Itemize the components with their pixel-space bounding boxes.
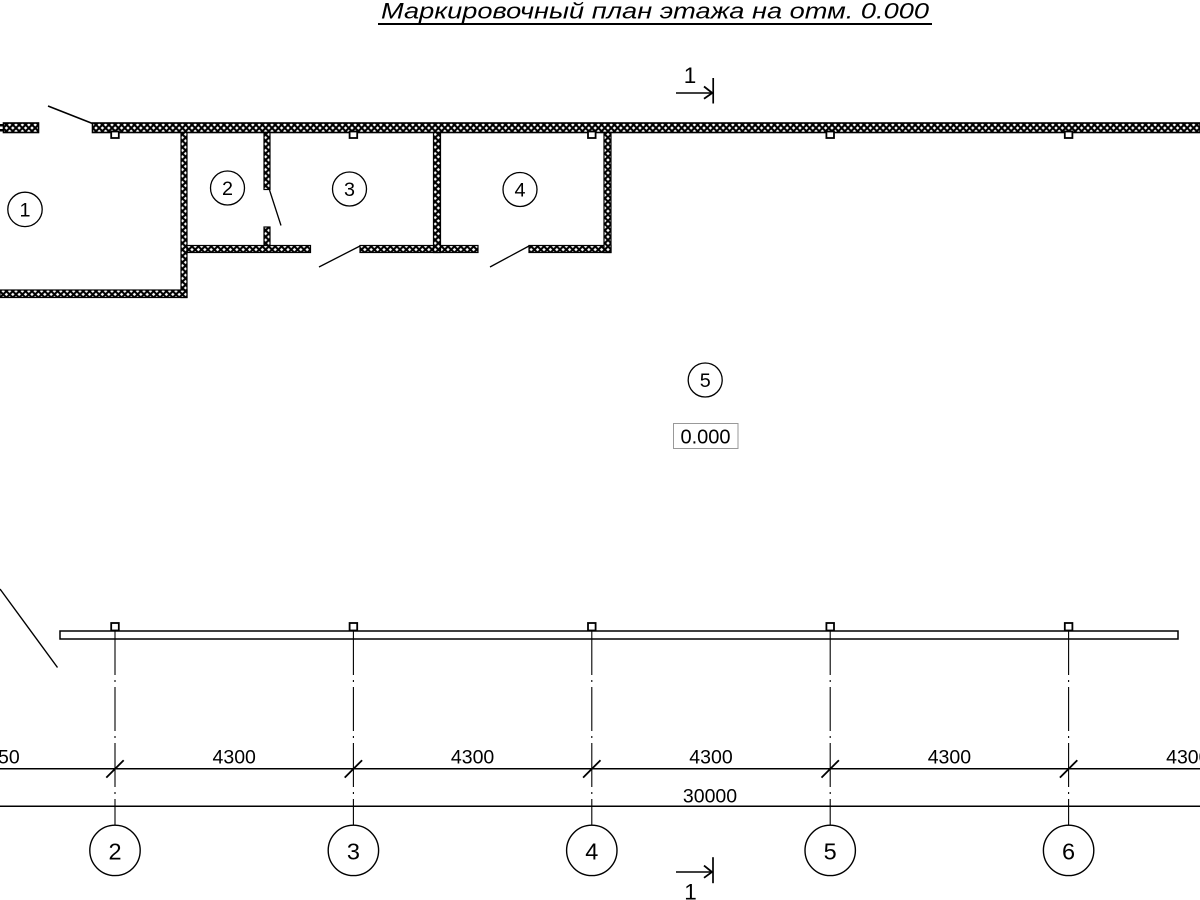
svg-text:1: 1	[684, 880, 697, 900]
svg-text:4300: 4300	[451, 747, 495, 769]
svg-text:1: 1	[19, 200, 30, 222]
svg-text:4: 4	[585, 839, 598, 865]
svg-text:2: 2	[108, 839, 121, 865]
svg-text:3: 3	[344, 179, 355, 201]
svg-text:30000: 30000	[683, 786, 737, 808]
svg-text:4300: 4300	[1166, 747, 1200, 769]
svg-text:3: 3	[347, 839, 360, 865]
svg-text:4300: 4300	[689, 747, 733, 769]
svg-text:4300: 4300	[213, 747, 257, 769]
svg-text:4: 4	[514, 180, 525, 202]
svg-text:Маркировочный план этажа на от: Маркировочный план этажа на отм. 0.000	[381, 0, 930, 24]
svg-text:6: 6	[1062, 839, 1075, 865]
svg-text:2: 2	[222, 178, 233, 200]
svg-text:1: 1	[684, 63, 697, 88]
svg-text:5: 5	[700, 370, 711, 392]
svg-text:5: 5	[824, 839, 837, 865]
svg-text:2050: 2050	[0, 747, 20, 769]
svg-text:0.000: 0.000	[680, 427, 730, 449]
svg-text:4300: 4300	[928, 747, 972, 769]
